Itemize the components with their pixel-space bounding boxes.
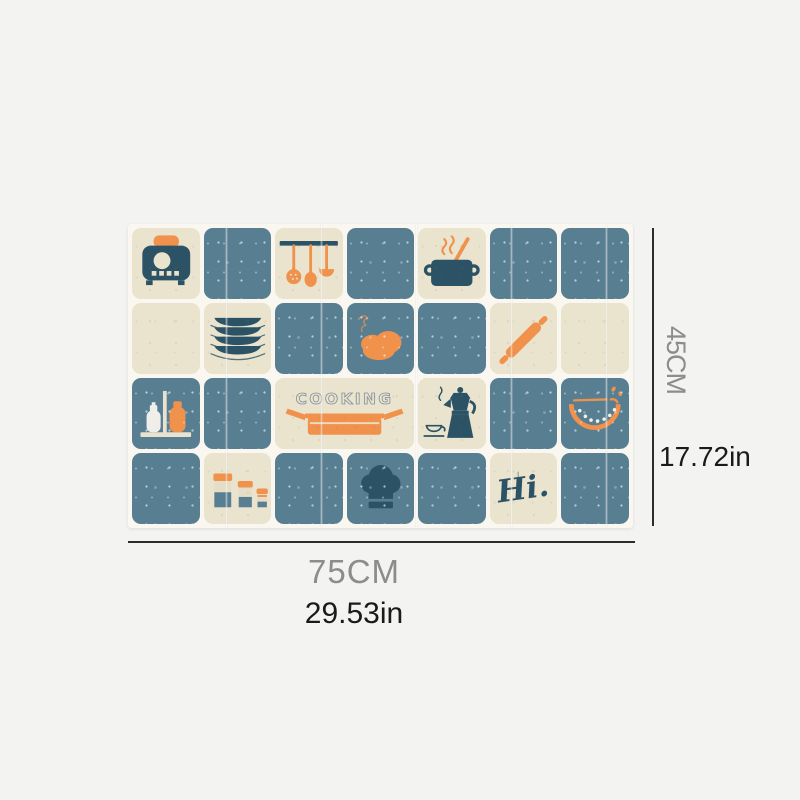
- tile-blank-blue: [561, 453, 629, 524]
- toaster-icon: [132, 228, 200, 299]
- tile-blank-blue: [204, 228, 272, 299]
- tile-chef-hat: [347, 453, 415, 524]
- tile-hi-script: Hi.: [490, 453, 558, 524]
- tile-blank-blue: [561, 228, 629, 299]
- cooking-pot-icon: [418, 228, 486, 299]
- tile-blank-cream: [132, 303, 200, 374]
- utensil-rack-icon: [275, 228, 343, 299]
- tile-watermelon: [561, 378, 629, 449]
- tile-blank-blue: [418, 453, 486, 524]
- tile-toaster: [132, 228, 200, 299]
- rolling-pin-icon: [490, 303, 558, 374]
- tile-blank-blue: [275, 303, 343, 374]
- height-dimension-line: [652, 228, 654, 526]
- tile-blank-blue: [132, 453, 200, 524]
- tile-blank-blue: [204, 378, 272, 449]
- cooking-text-pan-icon: COOKING: [275, 378, 414, 449]
- hi-script-icon: Hi.: [490, 453, 558, 524]
- tile-blank-blue: [490, 228, 558, 299]
- watermelon-icon: [561, 378, 629, 449]
- height-in-label: 17.72in: [659, 441, 751, 473]
- cooking-label: COOKING: [296, 390, 394, 408]
- tile-blank-cream: [561, 303, 629, 374]
- product-photo-canvas: COOKING: [0, 0, 800, 800]
- tile-spice-jars: [204, 453, 272, 524]
- chef-hat-icon: [347, 453, 415, 524]
- tile-plate-stack: [204, 303, 272, 374]
- width-dimension-line: [128, 541, 635, 543]
- script-label: Hi.: [494, 468, 551, 511]
- tile-blank-blue: [275, 453, 343, 524]
- width-in-label: 29.53in: [240, 597, 468, 631]
- tile-bread: [347, 303, 415, 374]
- bread-icon: [347, 303, 415, 374]
- tile-rolling-pin: [490, 303, 558, 374]
- width-cm-label: 75CM: [240, 553, 468, 591]
- tile-blank-blue: [490, 378, 558, 449]
- salt-pepper-shakers-icon: [132, 378, 200, 449]
- tile-salt-pepper: [132, 378, 200, 449]
- kitchen-tile-mat: COOKING: [128, 224, 633, 528]
- tile-blank-blue: [347, 228, 415, 299]
- height-cm-label: 45CM: [662, 326, 689, 394]
- moka-pot-cup-icon: [418, 378, 486, 449]
- tile-moka-pot: [418, 378, 486, 449]
- tile-cooking-pan: COOKING: [275, 378, 414, 449]
- spice-jars-icon: [204, 453, 272, 524]
- tile-cooking-pot: [418, 228, 486, 299]
- tile-blank-blue: [418, 303, 486, 374]
- plate-stack-icon: [204, 303, 272, 374]
- tile-utensil-rack: [275, 228, 343, 299]
